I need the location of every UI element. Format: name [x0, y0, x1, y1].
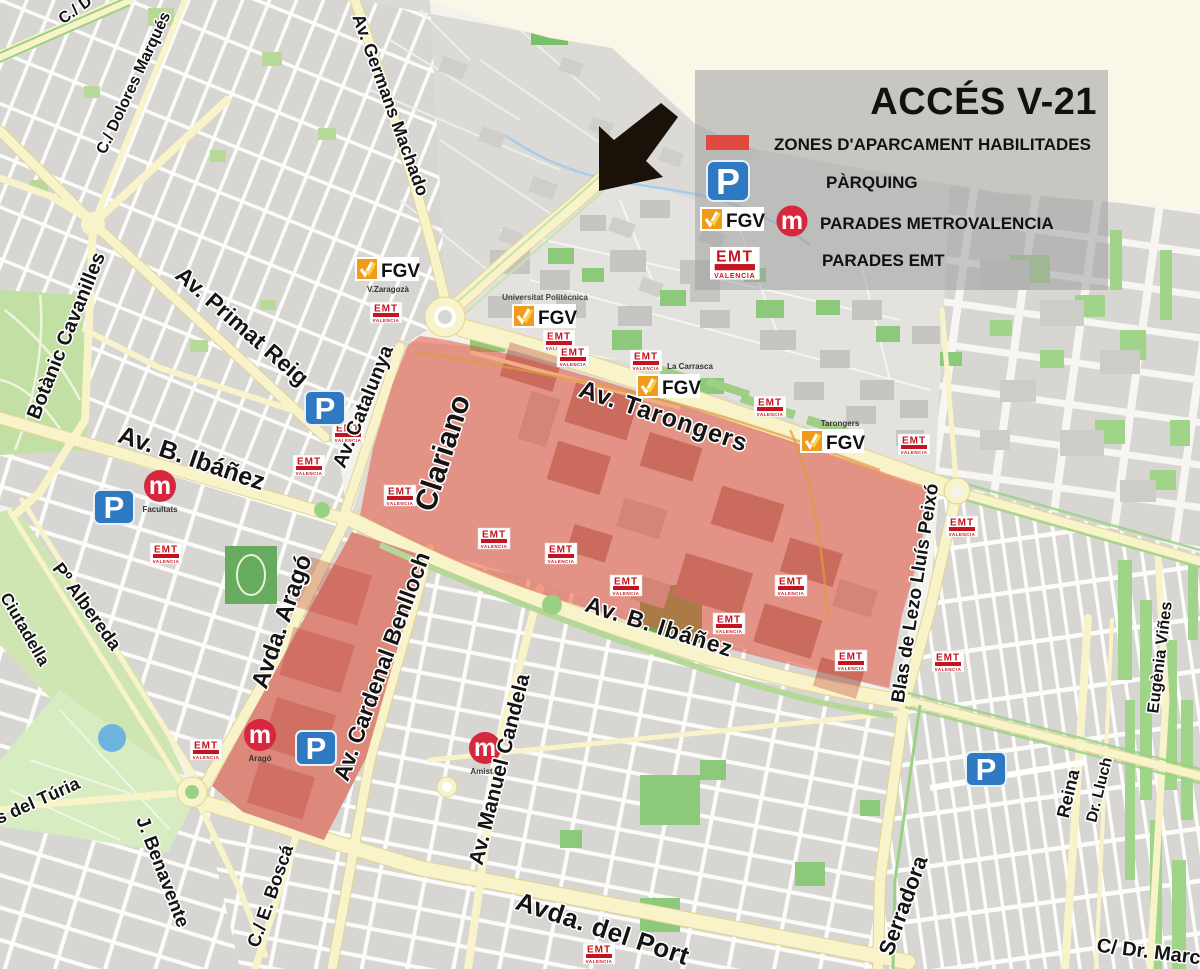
svg-text:ACCÉS V-21: ACCÉS V-21 — [870, 79, 1097, 123]
svg-text:Aragó: Aragó — [248, 754, 271, 763]
svg-text:EMT: EMT — [716, 249, 753, 266]
svg-text:V.Zaragozà: V.Zaragozà — [367, 285, 409, 294]
svg-text:ZONES D'APARCAMENT HABILITADES: ZONES D'APARCAMENT HABILITADES — [774, 135, 1091, 154]
svg-text:PARADES METROVALENCIA: PARADES METROVALENCIA — [820, 214, 1054, 233]
svg-text:P: P — [716, 161, 740, 202]
svg-text:PARADES EMT: PARADES EMT — [822, 251, 945, 270]
svg-text:PÀRQUING: PÀRQUING — [826, 173, 918, 192]
svg-text:Universitat Politècnica: Universitat Politècnica — [502, 293, 588, 302]
svg-text:La Carrasca: La Carrasca — [667, 362, 713, 371]
svg-text:Tarongers: Tarongers — [821, 419, 860, 428]
svg-text:m: m — [781, 207, 803, 235]
svg-text:VALENCIA: VALENCIA — [714, 273, 755, 280]
svg-text:Facultats: Facultats — [142, 505, 178, 514]
